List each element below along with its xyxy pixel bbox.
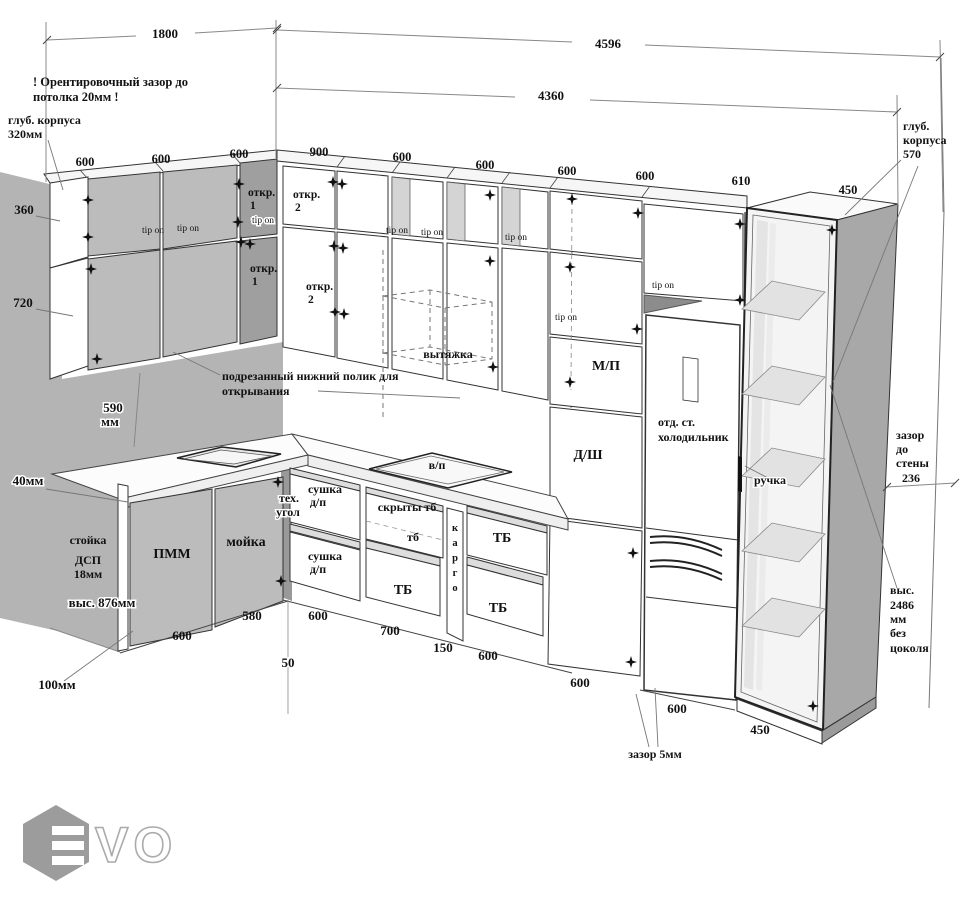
- kitchen-elevation-drawing: 1800 4596 4360 600 600 600 900 600 600 6…: [0, 0, 966, 900]
- dim-450-tall: 450: [750, 722, 770, 737]
- tip-on-label: tip on: [505, 233, 527, 243]
- dry-rack-label: сушка: [308, 549, 342, 563]
- tip-on-label: tip on: [421, 228, 443, 238]
- fridge-body: [644, 315, 740, 700]
- logo-bar: [52, 826, 84, 835]
- width-label: 600: [230, 147, 249, 161]
- tip-on-label: tip on: [652, 281, 674, 291]
- height-note: без: [890, 626, 906, 640]
- cargo-letter: р: [452, 553, 458, 564]
- dim-580: 580: [242, 608, 262, 623]
- wall-gap-note: зазор: [896, 428, 925, 442]
- dsh-cell: [550, 407, 642, 528]
- dishwasher-label: ПММ: [153, 547, 190, 562]
- dim-1800: 1800: [152, 26, 178, 41]
- opening-label: откр.: [293, 189, 320, 201]
- opening-count: 1: [252, 276, 258, 288]
- stand-panel-edge: [118, 484, 128, 651]
- dim-50: 50: [282, 655, 295, 670]
- width-label: 600: [636, 169, 655, 183]
- dim-720: 720: [13, 295, 33, 310]
- dry-rack-label: д/п: [310, 495, 326, 509]
- wall-cabinet-door: [502, 248, 548, 400]
- width-label: 600: [393, 150, 412, 164]
- dim-40mm: 40мм: [13, 473, 44, 488]
- dim-600: 600: [478, 648, 498, 663]
- wall-cabinet-door: [88, 172, 160, 256]
- cargo-letter: к: [452, 523, 459, 534]
- dishwasher-door: [130, 489, 212, 646]
- dim-360: 360: [14, 202, 34, 217]
- ceiling-gap-note: ! Орентировочный зазор до: [33, 75, 188, 89]
- lower-door: [548, 519, 642, 676]
- left-run-wall-cabinets: [50, 159, 277, 379]
- tech-corner-label: угол: [276, 505, 300, 519]
- microwave-cell: [550, 337, 642, 414]
- dim-590-mm: мм: [101, 414, 119, 429]
- tb-label: ТБ: [489, 601, 508, 616]
- dim-876: выс. 876мм: [69, 595, 136, 610]
- wall-gap-note: до: [896, 442, 908, 456]
- depth-right-note: корпуса: [903, 133, 946, 147]
- niche-interior: [447, 182, 465, 241]
- opening-label: откр.: [250, 263, 277, 275]
- wall-cabinet-door: [337, 171, 388, 234]
- width-label: 600: [558, 164, 577, 178]
- wall-gap-note: 236: [902, 471, 920, 485]
- dim-150: 150: [433, 640, 453, 655]
- dim-600-fridge: 600: [667, 701, 687, 716]
- cabinet-side-panel: [50, 258, 88, 379]
- dsh-label: Д/Ш: [574, 448, 604, 463]
- width-label: 900: [310, 145, 329, 159]
- tech-corner-label: тех.: [279, 491, 299, 505]
- tb-label: ТБ: [394, 583, 413, 598]
- stand-label: 18мм: [74, 567, 102, 581]
- tip-on-label: tip on: [177, 224, 199, 234]
- dim-600-pmm: 600: [172, 628, 192, 643]
- dim-4360: 4360: [538, 88, 564, 103]
- dim-4596: 4596: [595, 36, 622, 51]
- wall-cabinet-door: [337, 232, 388, 368]
- tip-on-label: tip on: [252, 216, 274, 226]
- logo-bar: [52, 841, 84, 850]
- height-note: выс.: [890, 583, 914, 597]
- dim-600-dsh: 600: [570, 675, 590, 690]
- corner-cabinet-door: [240, 237, 277, 344]
- depth-left-note: глуб. корпуса: [8, 113, 81, 127]
- width-label: 610: [732, 174, 751, 188]
- wall-gap-note: стены: [896, 456, 929, 470]
- door-handle: [738, 456, 742, 492]
- height-note: 2486: [890, 598, 914, 612]
- wall-cabinet-door: [163, 241, 237, 357]
- fridge-label: отд. ст.: [658, 415, 695, 429]
- hob-label: в/п: [429, 458, 446, 472]
- dim-700: 700: [380, 623, 400, 638]
- width-label: 600: [476, 158, 495, 172]
- dry-rack-label: сушка: [308, 482, 342, 496]
- width-label: 600: [76, 155, 95, 169]
- cabinet-side-panel: [50, 177, 88, 268]
- sink-label: мойка: [226, 535, 265, 550]
- logo-bar: [52, 856, 84, 865]
- base-cabinets-left: [118, 477, 288, 653]
- stand-label: ДСП: [75, 553, 102, 567]
- kitchen-drawing-canvas: 1800 4596 4360 600 600 600 900 600 600 6…: [0, 0, 966, 900]
- cargo-letter: г: [453, 568, 458, 579]
- stand-label: стойка: [70, 533, 107, 547]
- opening-count: 2: [308, 294, 314, 306]
- tip-on-label: tip on: [555, 313, 577, 323]
- niche-shadow: [644, 295, 702, 313]
- trimmed-plinth-note: открывания: [222, 384, 290, 398]
- handle-label: ручка: [754, 473, 786, 487]
- cargo-letter: а: [452, 538, 458, 549]
- height-note: цоколя: [890, 641, 929, 655]
- evo-logo: VO: [23, 805, 177, 881]
- wall-cabinet-door: [163, 165, 237, 249]
- cabinet-cell: [550, 252, 642, 344]
- dim-590: 590: [103, 400, 123, 415]
- hood-label: вытяжка: [423, 347, 473, 361]
- wall-cabinet-door: [88, 250, 160, 370]
- sink-cabinet-door: [215, 477, 283, 627]
- tip-on-label: tip on: [386, 226, 408, 236]
- opening-label: откр.: [306, 281, 333, 293]
- width-label: 450: [839, 183, 858, 197]
- depth-right-note: глуб.: [903, 119, 929, 133]
- dim-600: 600: [308, 608, 328, 623]
- gap-5mm-note: зазор 5мм: [628, 747, 682, 761]
- height-note: мм: [890, 612, 906, 626]
- ceiling-gap-note: потолка 20мм !: [33, 90, 119, 104]
- cabinet-cell: [550, 191, 642, 259]
- tb-label: ТБ: [493, 531, 512, 546]
- width-label: 600: [152, 152, 171, 166]
- opening-count: 2: [295, 202, 301, 214]
- hidden-tb-label: скрыты тб: [378, 500, 436, 514]
- dim-100mm: 100мм: [38, 677, 75, 692]
- microwave-column: [548, 191, 642, 676]
- logo-text: VO: [95, 817, 177, 873]
- opening-count: 1: [250, 200, 256, 212]
- depth-right-note: 570: [903, 147, 921, 161]
- microwave-label: М/П: [592, 359, 620, 374]
- fridge-label: холодильник: [658, 430, 729, 444]
- depth-left-note: 320мм: [8, 127, 42, 141]
- tip-on-label: tip on: [142, 226, 164, 236]
- cargo-letter: о: [452, 583, 457, 594]
- fridge-column: [644, 204, 745, 705]
- tb-small-label: тб: [407, 530, 419, 544]
- dry-rack-label: д/п: [310, 562, 326, 576]
- opening-label: откр.: [248, 187, 275, 199]
- trimmed-plinth-note: подрезанный нижний полик для: [222, 369, 399, 383]
